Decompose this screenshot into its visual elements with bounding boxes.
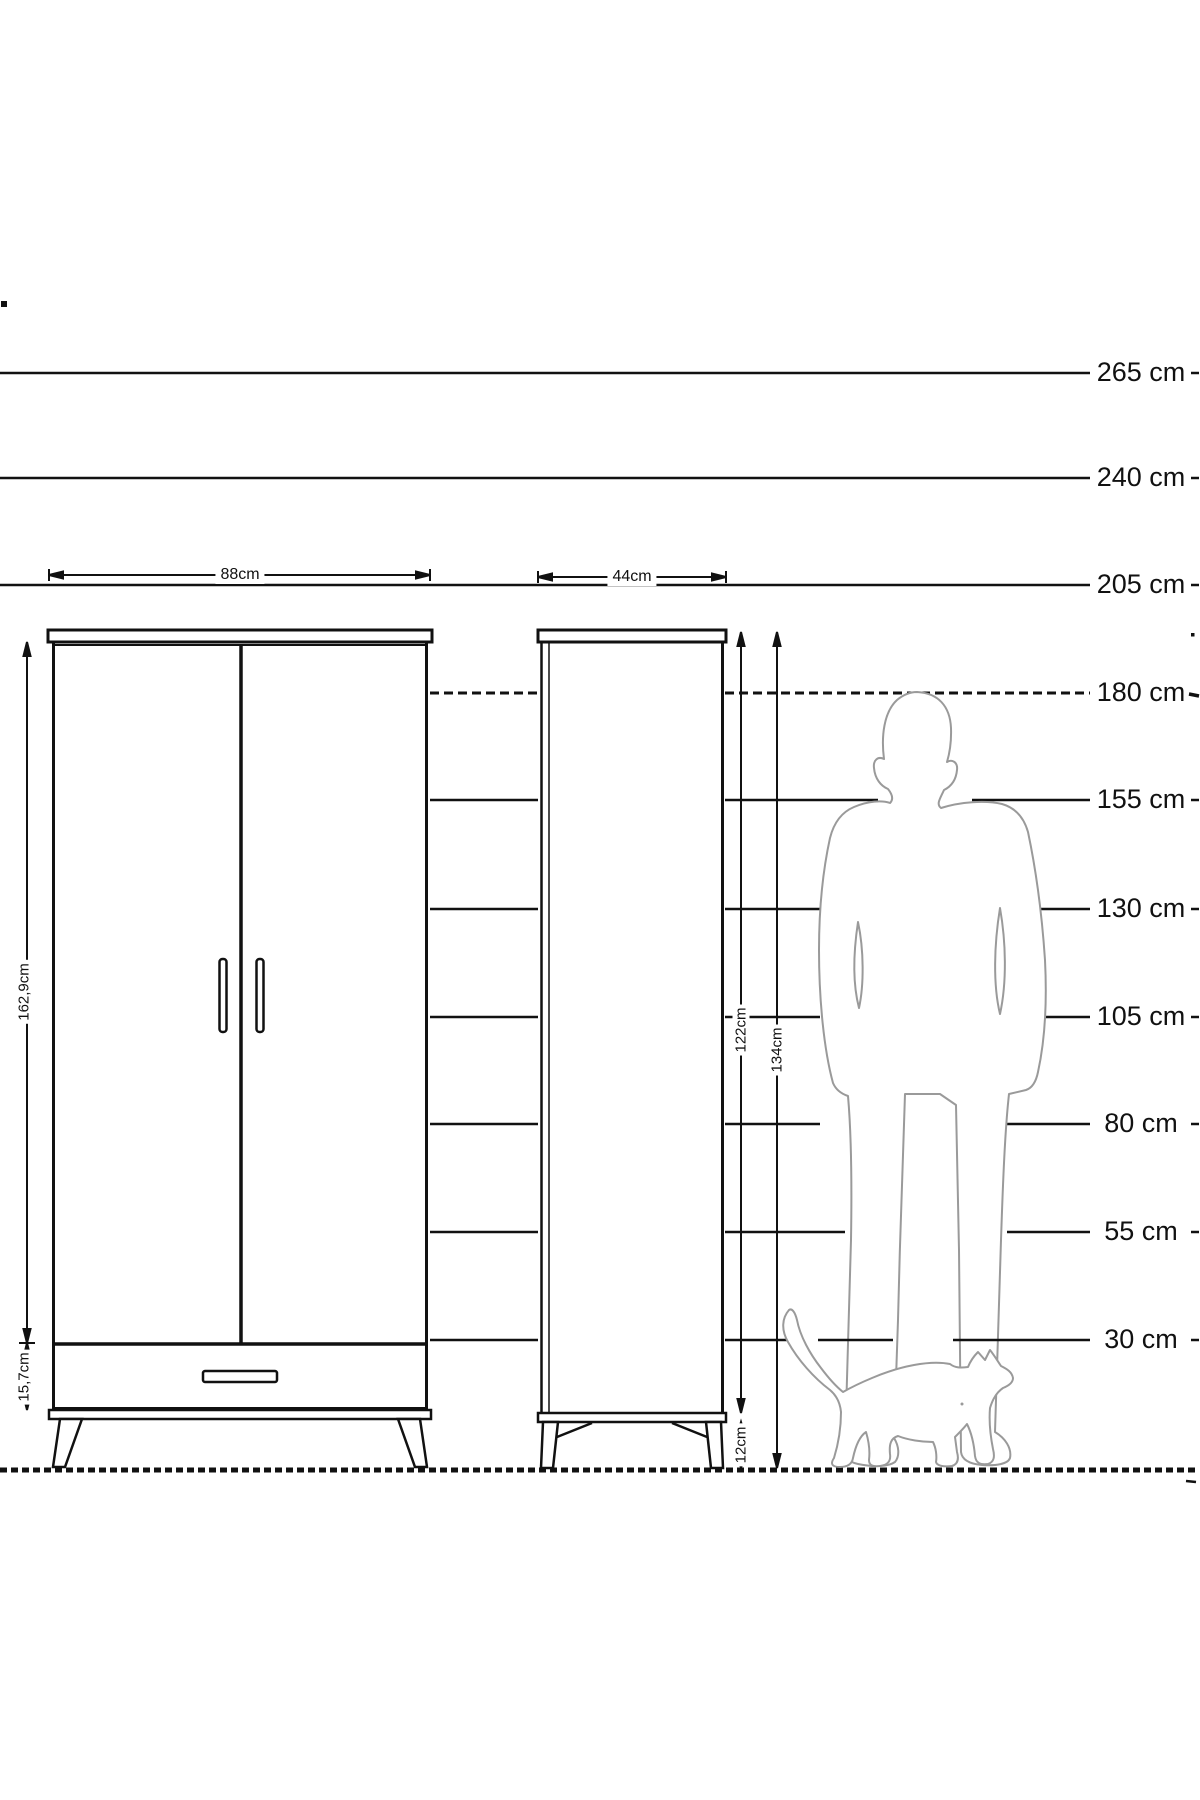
wardrobe-drawer-handle xyxy=(203,1371,277,1382)
cabinet-leg-height-label: 12cm xyxy=(733,1424,750,1467)
scale-label-180: 180 cm xyxy=(1093,677,1189,707)
man-outline xyxy=(819,692,1046,1466)
stray-mark-top-left xyxy=(1,301,7,307)
standing-man-silhouette xyxy=(819,692,1046,1466)
scale-label-80: 80 cm xyxy=(1093,1108,1189,1138)
wardrobe-width-label: 88cm xyxy=(215,566,264,584)
wardrobe-left-door-handle xyxy=(220,959,227,1032)
wardrobe-drawer-height-label: 15,7cm xyxy=(16,1349,33,1404)
scale-label-265: 265 cm xyxy=(1093,357,1189,387)
cabinet-left-leg xyxy=(541,1422,558,1468)
wardrobe-right-leg xyxy=(398,1419,427,1467)
scale-label-155: 155 cm xyxy=(1093,784,1189,814)
wardrobe-base-panel xyxy=(49,1410,431,1419)
cabinet-body-height-label: 122cm xyxy=(733,1004,750,1055)
wardrobe-right-door-handle xyxy=(257,959,264,1032)
scale-label-55: 55 cm xyxy=(1093,1216,1189,1246)
wardrobe-body-height-label: 162,9cm xyxy=(16,960,33,1024)
scale-label-105: 105 cm xyxy=(1093,1001,1189,1031)
cabinet-right-leg-brace xyxy=(672,1423,707,1437)
scale-label-240: 240 cm xyxy=(1093,462,1189,492)
scale-label-205: 205 cm xyxy=(1093,569,1189,599)
stray-dot-right xyxy=(1191,633,1195,637)
cabinet-top-panel xyxy=(538,630,726,642)
scale-label-ticks xyxy=(1186,373,1199,1482)
scale-label-30: 30 cm xyxy=(1093,1324,1189,1354)
dimension-lines xyxy=(19,569,781,1468)
cabinet-width-label: 44cm xyxy=(607,568,656,586)
cabinet-right-leg xyxy=(706,1422,723,1468)
cabinet-base-panel xyxy=(538,1413,726,1422)
wardrobe-left-leg xyxy=(53,1419,82,1467)
scale-label-130: 130 cm xyxy=(1093,893,1189,923)
wardrobe-drawing xyxy=(48,630,432,1467)
furniture-dimension-diagram: 265 cm 240 cm 205 cm 180 cm 155 cm 130 c… xyxy=(0,0,1200,1800)
diagram-linework xyxy=(0,0,1200,1800)
wardrobe-top-panel xyxy=(48,630,432,642)
cat-eye-dot xyxy=(961,1403,964,1406)
cabinet-drawing xyxy=(538,630,726,1468)
cabinet-left-leg-brace xyxy=(557,1423,592,1437)
cabinet-total-height-label: 134cm xyxy=(769,1024,786,1075)
